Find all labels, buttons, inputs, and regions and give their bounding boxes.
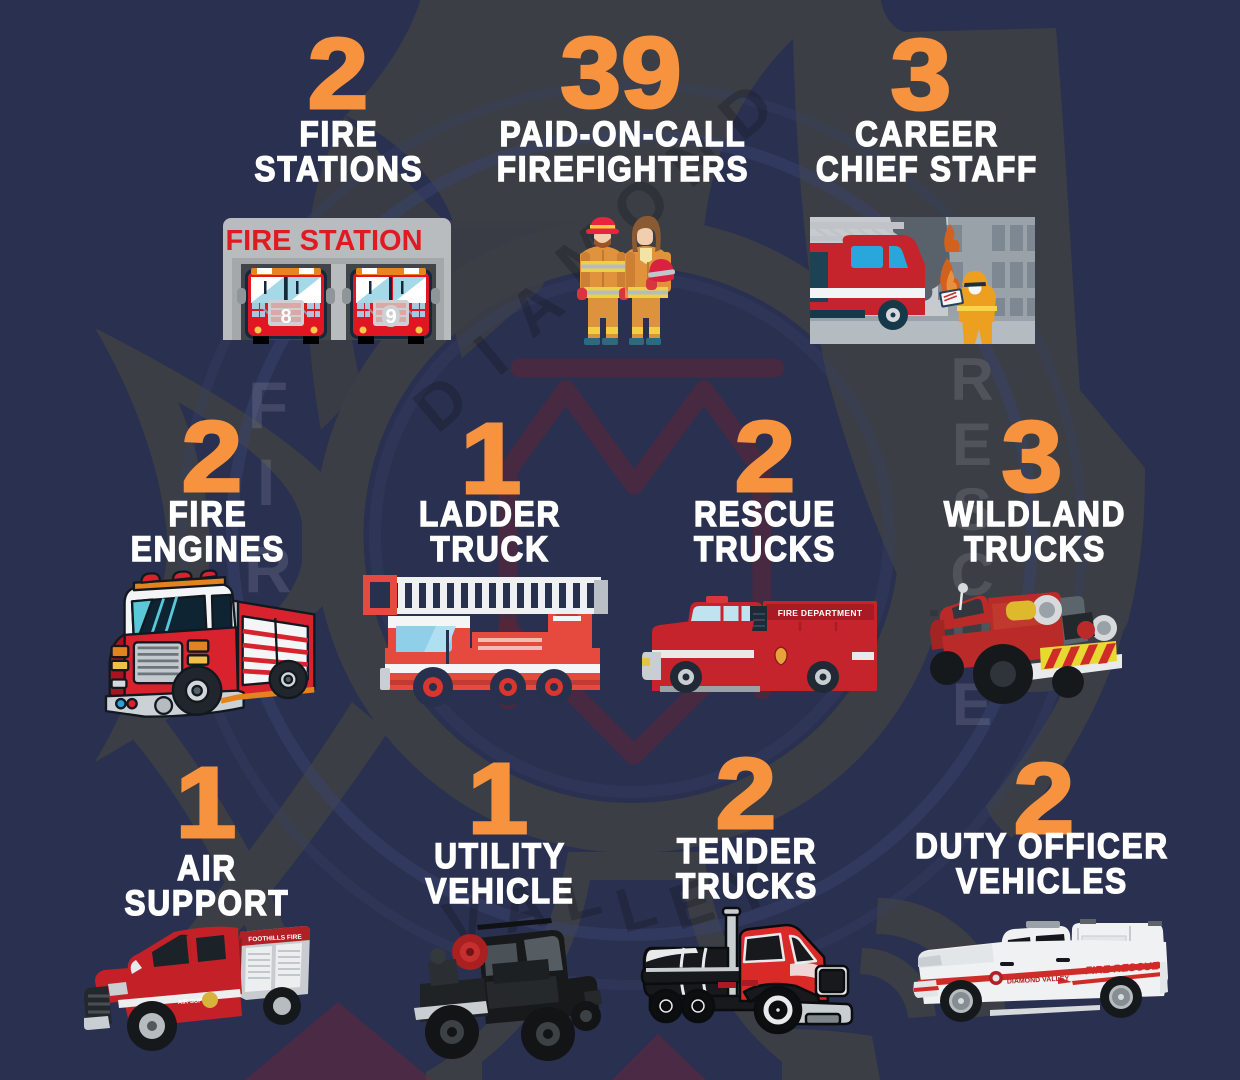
svg-text:FIRE DEPARTMENT: FIRE DEPARTMENT xyxy=(778,608,863,618)
svg-text:8: 8 xyxy=(280,306,291,328)
svg-text:FIRE STATION: FIRE STATION xyxy=(225,225,422,257)
svg-text:9: 9 xyxy=(385,306,396,328)
